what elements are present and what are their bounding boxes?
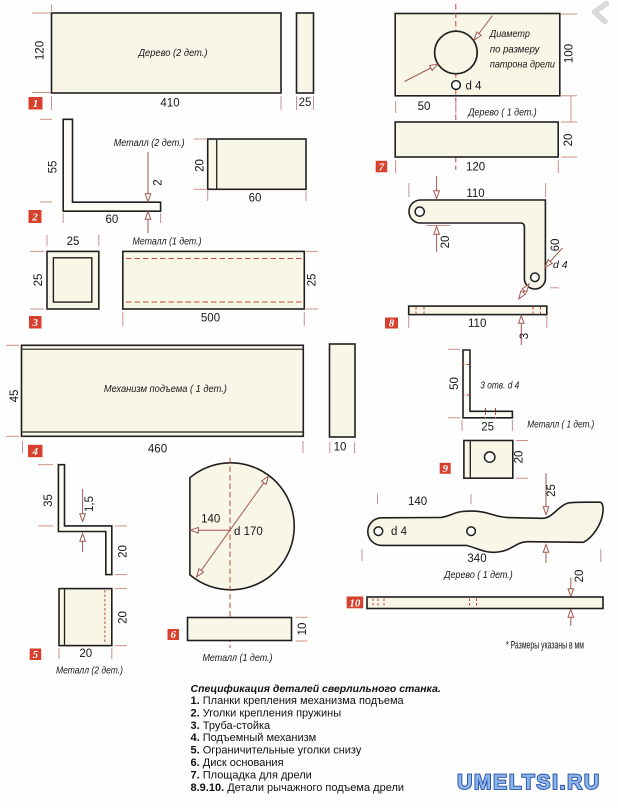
svg-text:25: 25 — [67, 236, 80, 248]
svg-text:7. Площадка для дрели: 7. Площадка для дрели — [191, 769, 312, 781]
svg-text:1,5: 1,5 — [84, 496, 96, 512]
svg-text:4. Подъемный механизм: 4. Подъемный механизм — [191, 732, 317, 744]
svg-text:8.9.10. Детали рычажного подъе: 8.9.10. Детали рычажного подъема дрели — [191, 782, 405, 794]
svg-text:* Размеры указаны в мм: * Размеры указаны в мм — [506, 640, 584, 652]
svg-text:20: 20 — [79, 648, 92, 660]
svg-text:460: 460 — [148, 444, 167, 456]
svg-text:100: 100 — [564, 44, 576, 63]
svg-text:110: 110 — [468, 318, 486, 330]
svg-text:Металл (2 дет.): Металл (2 дет.) — [56, 665, 123, 677]
svg-text:20: 20 — [514, 451, 526, 464]
svg-text:45: 45 — [9, 390, 21, 403]
svg-text:55: 55 — [48, 161, 60, 174]
svg-text:3: 3 — [31, 317, 38, 329]
svg-text:25: 25 — [481, 422, 494, 434]
svg-text:3 отв. d 4: 3 отв. d 4 — [480, 380, 519, 392]
svg-text:Спецификация деталей сверлильн: Спецификация деталей сверлильного станка… — [191, 683, 441, 695]
svg-text:25: 25 — [299, 97, 312, 109]
svg-text:410: 410 — [160, 98, 179, 110]
svg-text:3. Труба-стойка: 3. Труба-стойка — [191, 720, 272, 732]
svg-text:Металл (1 дет.): Металл (1 дет.) — [203, 652, 273, 664]
svg-text:120: 120 — [35, 41, 47, 60]
svg-text:Металл (1 дет.): Металл (1 дет.) — [133, 236, 202, 248]
svg-text:20: 20 — [574, 570, 586, 583]
svg-text:1. Планки крепления механизма: 1. Планки крепления механизма подъема — [191, 695, 405, 707]
svg-text:Дерево ( 1 дет.): Дерево ( 1 дет.) — [443, 569, 512, 581]
svg-text:Диаметр: Диаметр — [489, 28, 530, 40]
svg-text:140: 140 — [408, 496, 427, 508]
svg-text:d 4: d 4 — [466, 81, 483, 93]
svg-text:Металл ( 1 дет.): Металл ( 1 дет.) — [527, 419, 594, 431]
svg-text:Дерево (2 дет.): Дерево (2 дет.) — [138, 47, 208, 59]
svg-text:25: 25 — [307, 274, 319, 287]
svg-text:5: 5 — [33, 649, 39, 661]
svg-text:Металл (2 дет.): Металл (2 дет.) — [114, 137, 185, 149]
svg-text:6: 6 — [170, 629, 176, 641]
svg-text:25: 25 — [546, 484, 558, 497]
svg-text:25: 25 — [33, 274, 45, 287]
svg-text:7: 7 — [379, 161, 385, 173]
svg-text:120: 120 — [466, 162, 485, 174]
svg-text:35: 35 — [43, 494, 55, 507]
svg-text:50: 50 — [418, 101, 431, 113]
svg-text:60: 60 — [550, 239, 562, 252]
svg-text:Механизм подъема ( 1 дет.): Механизм подъема ( 1 дет.) — [104, 383, 227, 395]
svg-text:9: 9 — [442, 463, 448, 475]
svg-text:5. Ограничительные уголки сниз: 5. Ограничительные уголки снизу — [191, 745, 362, 757]
svg-text:50: 50 — [449, 377, 461, 390]
svg-text:d 4: d 4 — [391, 526, 408, 538]
svg-text:60: 60 — [106, 214, 119, 226]
svg-text:UMELTSI.RU: UMELTSI.RU — [457, 771, 601, 794]
svg-text:3: 3 — [519, 333, 531, 339]
svg-text:2: 2 — [31, 212, 38, 224]
svg-text:d 170: d 170 — [234, 526, 263, 538]
svg-text:500: 500 — [201, 313, 220, 325]
svg-text:20: 20 — [117, 611, 129, 624]
svg-text:4: 4 — [31, 446, 38, 458]
svg-text:140: 140 — [201, 514, 220, 526]
svg-text:20: 20 — [563, 134, 575, 147]
svg-text:20: 20 — [118, 545, 130, 558]
svg-text:10: 10 — [334, 442, 347, 454]
svg-text:20: 20 — [195, 159, 207, 172]
svg-text:10: 10 — [297, 623, 309, 636]
svg-text:20: 20 — [440, 236, 452, 249]
svg-text:340: 340 — [467, 553, 486, 565]
svg-text:8: 8 — [389, 318, 395, 330]
svg-text:d 4: d 4 — [553, 259, 568, 271]
svg-text:по размеру: по размеру — [490, 43, 540, 55]
svg-text:10: 10 — [349, 597, 361, 609]
svg-text:6. Диск основания: 6. Диск основания — [191, 757, 284, 769]
svg-text:2: 2 — [153, 179, 165, 185]
svg-text:110: 110 — [466, 188, 484, 200]
svg-text:2. Уголки крепления пружины: 2. Уголки крепления пружины — [191, 707, 342, 719]
svg-text:1: 1 — [33, 98, 39, 110]
svg-text:60: 60 — [249, 193, 262, 205]
svg-text:патрона дрели: патрона дрели — [490, 59, 555, 71]
svg-text:Дерево ( 1 дет.): Дерево ( 1 дет.) — [467, 107, 536, 119]
